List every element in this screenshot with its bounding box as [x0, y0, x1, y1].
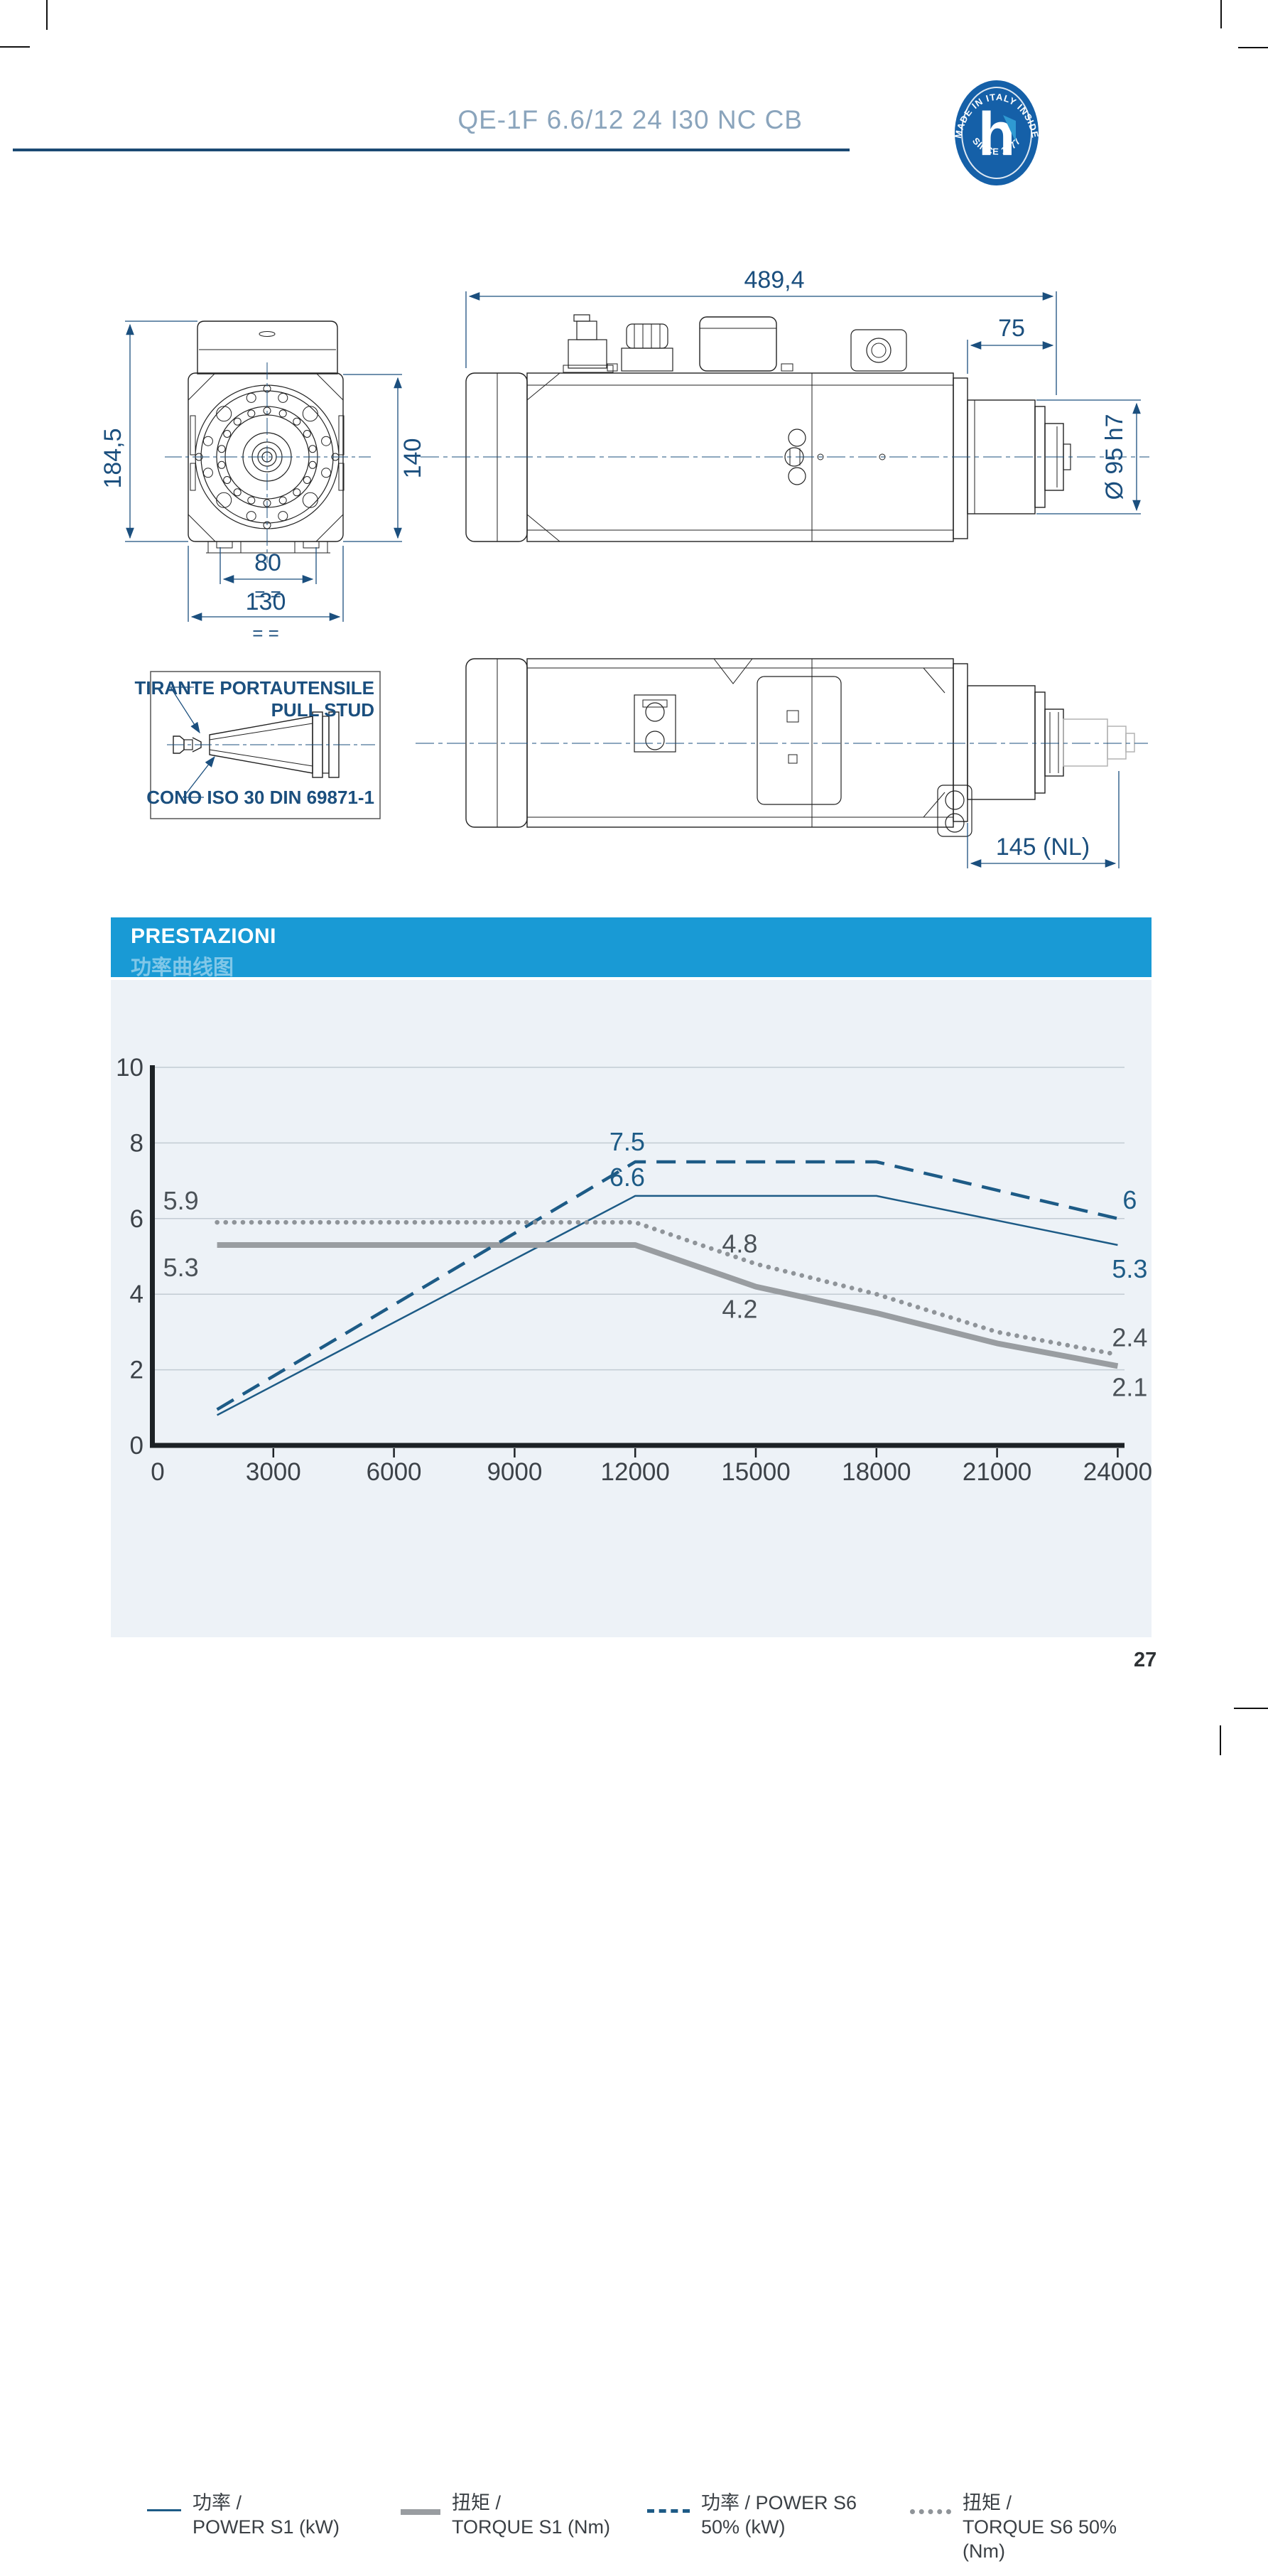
- legend-item-0: 功率 /POWER S1 (kW): [147, 2491, 340, 2539]
- point-label-5.3: 5.3: [1112, 1254, 1147, 1283]
- y-tick-label-10: 10: [116, 1054, 143, 1082]
- point-label-4.8: 4.8: [722, 1229, 757, 1259]
- dim-nose-diameter: Ø 95 h7: [1101, 414, 1128, 500]
- crop-mark-top-right-v: [1220, 0, 1222, 28]
- y-tick-label-2: 2: [130, 1357, 143, 1384]
- y-tick-label-6: 6: [130, 1205, 143, 1233]
- phantom-toolholder: [1063, 719, 1134, 766]
- dim-width: 130: [246, 588, 286, 615]
- legend-swatch-thick-gray: [401, 2509, 440, 2515]
- side-view-dimensions: [466, 291, 1141, 514]
- legend-swatch-solid-blue: [147, 2509, 181, 2511]
- legend-label: 功率 / POWER S650% (kW): [701, 2491, 857, 2539]
- point-label-2.1: 2.1: [1112, 1372, 1147, 1401]
- dim-nose-length: 75: [998, 315, 1025, 342]
- x-tick-label-3000: 3000: [246, 1458, 301, 1486]
- dim-nose-total: 145 (NL): [996, 834, 1090, 861]
- x-tick-label-6000: 6000: [367, 1458, 422, 1486]
- legend-swatch-dotted-gray: [910, 2509, 951, 2514]
- front-view-drawing: [188, 321, 344, 553]
- performance-title: PRESTAZIONI: [111, 917, 1152, 949]
- x-tick-label-24000: 24000: [1083, 1458, 1152, 1486]
- crop-mark-bottom-right-v: [1220, 1725, 1221, 1755]
- point-label-6.6: 6.6: [609, 1163, 645, 1192]
- y-tick-label-4: 4: [130, 1281, 143, 1308]
- side-view-drawing: [466, 315, 1071, 541]
- label-pull-stud-en: PULL STUD: [271, 699, 374, 721]
- chart-legend: 功率 /POWER S1 (kW)扭矩 /TORQUE S1 (Nm)功率 / …: [111, 2491, 1152, 2576]
- point-label-6: 6: [1122, 1185, 1137, 1214]
- legend-label: 功率 /POWER S1 (kW): [193, 2491, 340, 2539]
- made-in-italy-badge: MADE IN ITALY INSIDE SINCE 1977 h: [945, 75, 1051, 192]
- crop-mark-top-right-h: [1238, 47, 1268, 48]
- x-tick-label-9000: 9000: [487, 1458, 542, 1486]
- crop-mark-top-left-h: [0, 46, 30, 48]
- bottom-view-drawing: [466, 659, 1063, 836]
- x-tick-label-21000: 21000: [963, 1458, 1031, 1486]
- dim-height: 184,5: [99, 428, 126, 488]
- performance-subtitle-cn: 功率曲线图: [111, 949, 1152, 981]
- legend-item-2: 功率 / POWER S650% (kW): [647, 2491, 857, 2539]
- legend-swatch-dashed-blue: [647, 2509, 690, 2513]
- equals-mark-130: = =: [252, 623, 279, 644]
- crop-mark-bottom-right-h: [1234, 1708, 1268, 1709]
- label-cone: CONO ISO 30 DIN 69871-1: [146, 787, 374, 808]
- point-label-2.4: 2.4: [1112, 1322, 1147, 1352]
- performance-chart: 0300060009000120001500018000210002400002…: [111, 980, 1152, 1637]
- series-torque-s1-nm-: [217, 1245, 1118, 1366]
- technical-drawings: 184,5 140 80 = = 130 = =: [0, 263, 1268, 881]
- legend-label: 扭矩 /TORQUE S1 (Nm): [452, 2491, 610, 2539]
- y-tick-label-8: 8: [130, 1129, 143, 1157]
- dim-hole-spacing: 80: [254, 549, 281, 576]
- crop-mark-top-left-v: [46, 0, 48, 30]
- label-pull-stud-it: TIRANTE PORTAUTENSILE: [134, 677, 374, 699]
- header-rule: [13, 149, 850, 151]
- x-tick-label-0: 0: [151, 1458, 164, 1486]
- x-tick-label-12000: 12000: [601, 1458, 670, 1486]
- performance-panel: 0300060009000120001500018000210002400002…: [111, 980, 1152, 1637]
- series-power-s1-kw-: [217, 1196, 1118, 1416]
- front-view-dim-labels: 184,5 140 80 = = 130 = =: [99, 428, 426, 644]
- legend-item-1: 扭矩 /TORQUE S1 (Nm): [401, 2491, 610, 2539]
- performance-header-band: PRESTAZIONI 功率曲线图: [111, 917, 1152, 977]
- badge-h-logo-letter: h: [978, 100, 1016, 168]
- legend-label: 扭矩 /TORQUE S6 50% (Nm): [963, 2491, 1152, 2563]
- page-number: 27: [1134, 1649, 1156, 1672]
- point-label-4.2: 4.2: [722, 1295, 757, 1324]
- dim-length: 489,4: [744, 266, 804, 293]
- x-tick-label-15000: 15000: [721, 1458, 790, 1486]
- series-power-s6-50-kw-: [217, 1162, 1118, 1410]
- tool-detail-box: TIRANTE PORTAUTENSILE PULL STUD CONO ISO…: [134, 672, 380, 819]
- y-tick-label-0: 0: [130, 1432, 143, 1460]
- page-title: QE-1F 6.6/12 24 I30 NC CB: [0, 105, 803, 135]
- legend-item-3: 扭矩 /TORQUE S6 50% (Nm): [910, 2491, 1152, 2563]
- x-tick-label-18000: 18000: [842, 1458, 911, 1486]
- point-label-5.9: 5.9: [163, 1186, 199, 1215]
- dim-flange: 140: [399, 438, 426, 479]
- point-label-5.3: 5.3: [163, 1253, 199, 1282]
- point-label-7.5: 7.5: [609, 1127, 645, 1156]
